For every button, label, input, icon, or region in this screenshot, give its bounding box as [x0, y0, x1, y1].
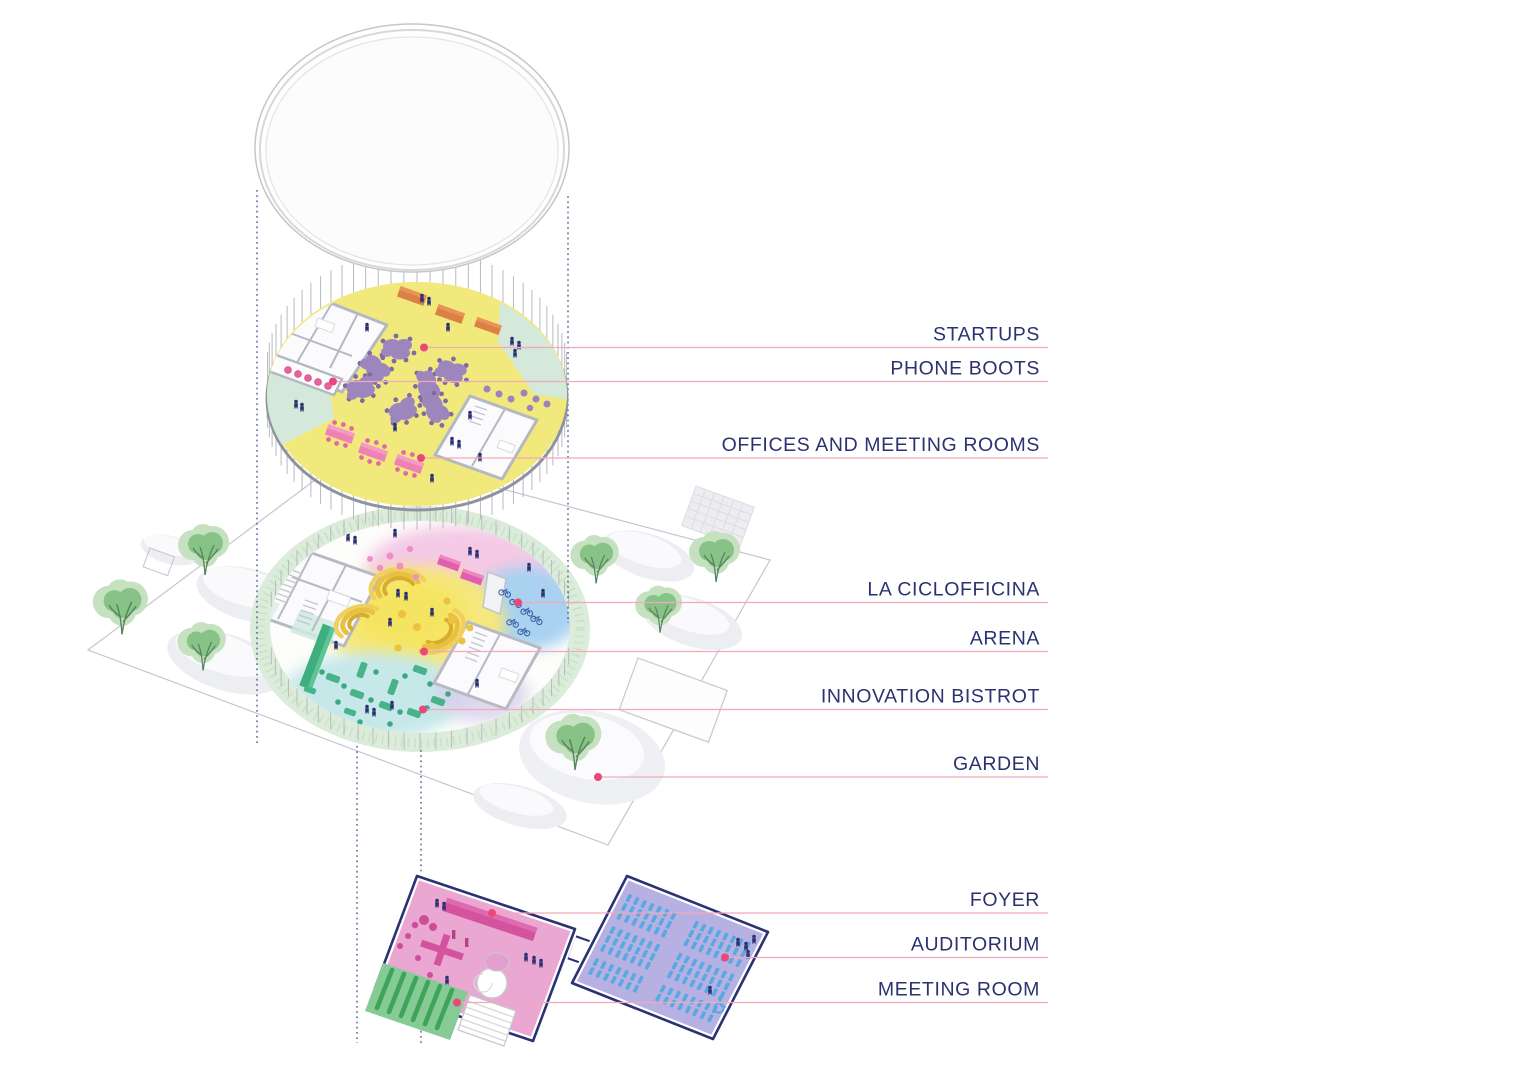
foyer — [365, 876, 575, 1046]
anchor-dot — [721, 954, 729, 962]
diagram-canvas: STARTUPSPHONE BOOTSOFFICES AND MEETING R… — [0, 0, 1527, 1080]
callout-label: FOYER — [970, 889, 1040, 911]
anchor-dot — [419, 706, 427, 714]
exploded-axonometric-diagram: STARTUPSPHONE BOOTSOFFICES AND MEETING R… — [0, 0, 1527, 1080]
callout-label: GARDEN — [953, 753, 1040, 775]
anchor-dot — [329, 378, 337, 386]
callout-label: STARTUPS — [933, 324, 1040, 346]
callout-label: MEETING ROOM — [878, 979, 1040, 1001]
anchor-dot — [488, 909, 496, 917]
anchor-dot — [514, 599, 522, 607]
anchor-dot — [420, 344, 428, 352]
callout-label: PHONE BOOTS — [890, 358, 1040, 380]
anchor-dot — [594, 773, 602, 781]
anchor-dot — [420, 648, 428, 656]
roof-canopy — [255, 24, 569, 272]
callout-label: INNOVATION BISTROT — [821, 686, 1040, 708]
basement-plan — [365, 876, 768, 1046]
callout-label: AUDITORIUM — [911, 934, 1040, 956]
startups-floor-plan — [250, 250, 572, 530]
anchor-dot — [453, 999, 461, 1007]
anchor-dot — [417, 454, 425, 462]
callout-label: LA CICLOFFICINA — [867, 579, 1040, 601]
callout-label: OFFICES AND MEETING ROOMS — [722, 434, 1040, 456]
callout-label: ARENA — [970, 628, 1040, 650]
